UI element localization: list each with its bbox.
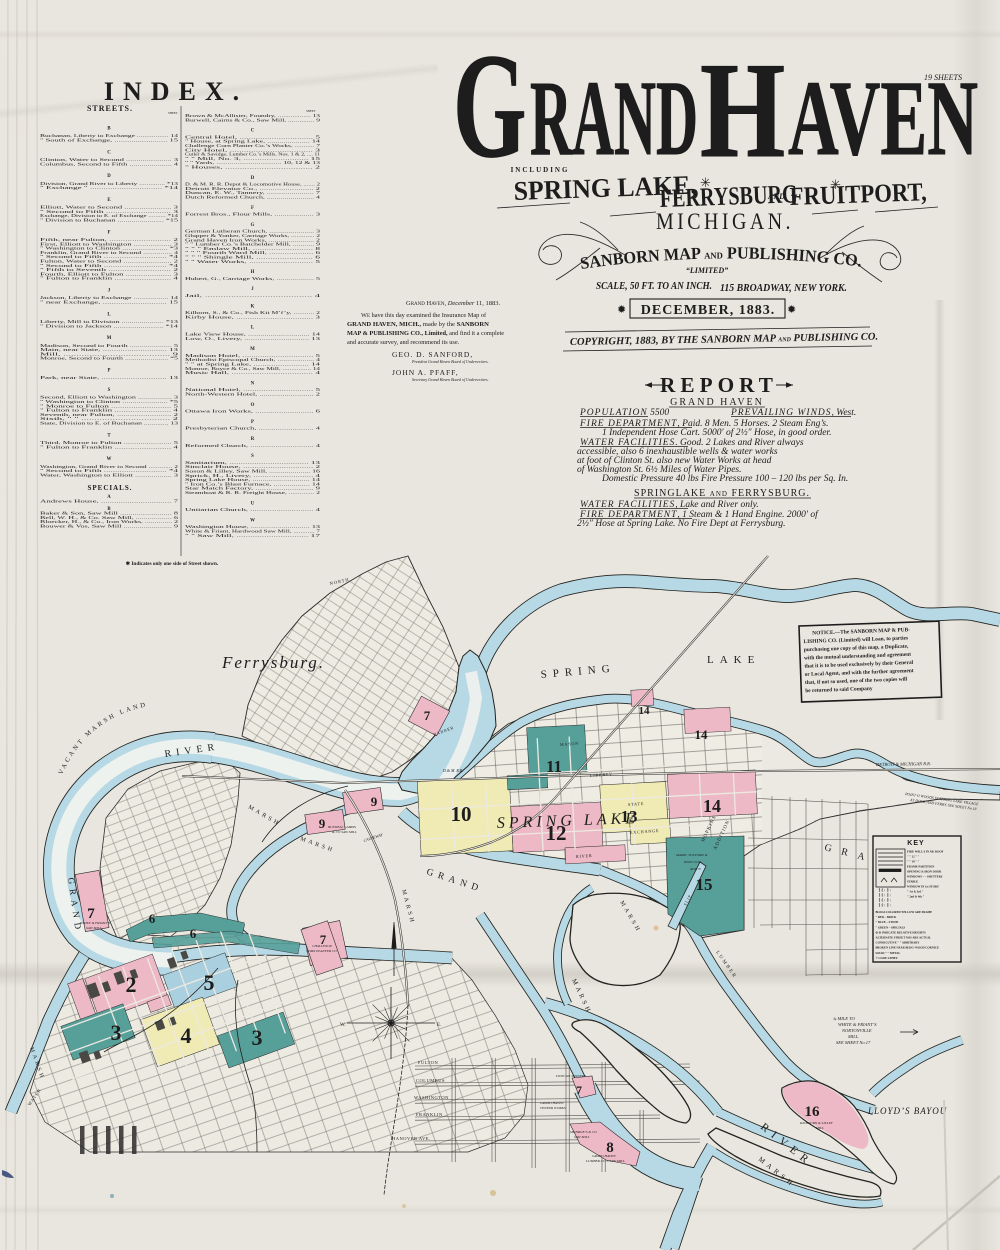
- svg-text:SPRINGLAKE AND FERRYSBURG.: SPRINGLAKE AND FERRYSBURG.: [634, 488, 810, 499]
- svg-text:REPORT: REPORT: [660, 373, 778, 397]
- svg-text:© CLIFF LEHEZ: © CLIFF LEHEZ: [876, 956, 898, 960]
- svg-text:MILL.: MILL.: [847, 1034, 859, 1039]
- svg-text:Ferrysburg.: Ferrysburg.: [221, 653, 325, 672]
- svg-text:" Exchange " ...............: " Exchange " ...........................…: [40, 186, 178, 190]
- svg-text:F: F: [108, 230, 111, 235]
- svg-text:U: U: [251, 501, 255, 506]
- svg-text:19 SHEETS: 19 SHEETS: [924, 73, 962, 82]
- svg-text:M: M: [250, 347, 255, 352]
- svg-text:INDEX.: INDEX.: [104, 77, 248, 106]
- svg-text:BROKEN LINE NEAR BLDG–WOOD COR: BROKEN LINE NEAR BLDG–WOOD CORNICE: [876, 946, 940, 950]
- svg-text:SHEET: SHEET: [168, 111, 178, 115]
- svg-text:VENEER WORKS: VENEER WORKS: [540, 1106, 566, 1110]
- svg-text:D: D: [251, 176, 255, 181]
- svg-text:STREETS.: STREETS.: [87, 104, 133, 113]
- svg-text:Domestic Pressure 40 lbs Fire: Domestic Pressure 40 lbs Fire Pressure 1…: [601, 474, 848, 484]
- svg-text:WASHINGTON: WASHINGTON: [414, 1095, 449, 1100]
- svg-text:D.& M. R.R.: D.& M. R.R.: [442, 768, 463, 773]
- svg-text:WHITE & FRIANT’S: WHITE & FRIANT’S: [80, 921, 110, 925]
- svg-text:G: G: [251, 223, 255, 228]
- svg-text:" Division to Jackson .......: " Division to Jackson ..................…: [40, 324, 178, 328]
- svg-text:SAW MILL: SAW MILL: [574, 1135, 590, 1139]
- svg-text:″ ″ 12 ″ ″: ″ ″ 12 ″ ″: [907, 855, 920, 859]
- svg-text:GRAND HAVEN: GRAND HAVEN: [540, 1101, 564, 1105]
- svg-text:W.: W.: [340, 1023, 346, 1028]
- svg-text:9: 9: [371, 794, 378, 809]
- svg-text:JOHN A. PFAFF,: JOHN A. PFAFF,: [392, 368, 459, 377]
- svg-text:WHITE & FRIANT’S: WHITE & FRIANT’S: [838, 1022, 877, 1027]
- svg-text:WE have this day examined the: WE have this day examined the Insurance …: [361, 312, 487, 319]
- svg-text:2: 2: [126, 972, 137, 997]
- svg-text:CONSECUTIVE ″ ″ ARBITRARY: CONSECUTIVE ″ ″ ARBITRARY: [876, 941, 921, 945]
- svg-text:MILL: MILL: [815, 1126, 824, 1130]
- svg-text:✹: ✹: [787, 304, 796, 316]
- svg-text:R: R: [251, 437, 255, 442]
- svg-text:P: P: [251, 420, 254, 425]
- svg-text:" Division to Buchanan ......: " Division to Buchanan .................…: [40, 219, 178, 223]
- svg-text:M: M: [107, 336, 112, 341]
- svg-text:▕▏|▏| ▕▏|: ▕▏|▏| ▕▏|: [877, 888, 891, 892]
- svg-text:HANOVER AVE.: HANOVER AVE.: [392, 1136, 431, 1141]
- svg-text:AND: AND: [767, 192, 785, 201]
- svg-text:DECEMBER, 1883.: DECEMBER, 1883.: [641, 303, 775, 318]
- svg-text:12: 12: [546, 821, 567, 845]
- svg-text:″ BLUE – STONE: ″ BLUE – STONE: [876, 920, 899, 924]
- svg-text:GRAND HAVEN: GRAND HAVEN: [592, 1154, 616, 1158]
- svg-text:1 Independent Hose Cart. 50: 1 Independent Hose Cart. 5000′ of 2½″ Ho…: [602, 427, 831, 438]
- svg-text:7: 7: [87, 906, 95, 922]
- svg-text:" Fulton to Franklin ........: " Fulton to Franklin ...................…: [40, 445, 178, 449]
- svg-text:FIRE WALL 6 IN AB. ROOF: FIRE WALL 6 IN AB. ROOF: [907, 850, 944, 854]
- svg-text:P: P: [108, 369, 111, 374]
- svg-text:BLDGS COLORED YELLOW ARE FRAME: BLDGS COLORED YELLOW ARE FRAME: [876, 910, 933, 914]
- svg-text:" Fulton to Franklin ........: " Fulton to Franklin ...................…: [40, 277, 178, 281]
- svg-text:LAKE: LAKE: [707, 654, 760, 666]
- svg-text:RAND: RAND: [530, 60, 698, 178]
- svg-text:SAW MILL: SAW MILL: [86, 926, 102, 930]
- svg-text:4: 4: [181, 1023, 192, 1048]
- svg-text:✹: ✹: [617, 304, 626, 316]
- svg-text:SPECIALS.: SPECIALS.: [88, 484, 133, 492]
- svg-text:✱ Indicates only one side of S: ✱ Indicates only one side of Street show…: [126, 561, 219, 567]
- svg-text:″ ″ 18 ″ ″: ″ ″ 18 ″ ″: [907, 860, 920, 864]
- svg-text:FULTON: FULTON: [418, 1060, 439, 1065]
- svg-text:3: 3: [111, 1020, 122, 1045]
- svg-text:ADD’N: ADD’N: [689, 867, 701, 871]
- svg-text:COLUMBUS: COLUMBUS: [416, 1078, 445, 1083]
- svg-text:6: 6: [149, 911, 156, 926]
- svg-text:7: 7: [424, 708, 431, 723]
- svg-text:E.: E.: [437, 1023, 441, 1028]
- svg-text:10: 10: [451, 802, 472, 826]
- svg-text:WINDOWS – – SHUTTERS: WINDOWS – – SHUTTERS: [907, 875, 943, 879]
- svg-text:SHEET: SHEET: [306, 109, 316, 113]
- svg-text:6: 6: [190, 926, 197, 941]
- svg-text:⊘ ⊘ INDICATE RELATIVE HEIGHTS: ⊘ ⊘ INDICATE RELATIVE HEIGHTS: [876, 930, 927, 934]
- svg-text:Secretary Grand Haven Board of: Secretary Grand Haven Board of Underwrit…: [412, 377, 489, 382]
- svg-text:3: 3: [252, 1025, 263, 1050]
- svg-text:″ RED – BRICK: ″ RED – BRICK: [876, 915, 898, 919]
- svg-text:KEY: KEY: [907, 840, 924, 847]
- svg-text:L: L: [107, 312, 110, 317]
- svg-text:L: L: [251, 326, 254, 331]
- svg-text:9: 9: [319, 816, 326, 831]
- svg-text:13: 13: [621, 807, 638, 826]
- svg-text:ALTERNATE STREET NOS ARE ACTUA: ALTERNATE STREET NOS ARE ACTUAL: [876, 936, 932, 940]
- svg-text:SEE SHEET No.17: SEE SHEET No.17: [836, 1040, 871, 1045]
- svg-text:GEO. D. SANFORD,: GEO. D. SANFORD,: [392, 350, 473, 359]
- svg-text:″ 2nd & 4th ″: ″ 2nd & 4th ″: [907, 895, 925, 899]
- svg-text:KILBOURN & LILLEY: KILBOURN & LILLEY: [799, 1121, 834, 1125]
- svg-text:H: H: [251, 270, 255, 275]
- svg-text:HANCOCK: HANCOCK: [683, 860, 701, 864]
- svg-text:14: 14: [695, 727, 709, 742]
- svg-text:W: W: [250, 518, 255, 523]
- svg-text:N: N: [251, 381, 255, 386]
- svg-text:President Grand Haven Board of: President Grand Haven Board of Underwrit…: [411, 359, 489, 364]
- svg-text:▕▏|▏| ▕▏|: ▕▏|▏| ▕▏|: [877, 893, 891, 897]
- svg-text:LLOYD’S BAYOU: LLOYD’S BAYOU: [867, 1106, 947, 1116]
- svg-text:FRANKLIN: FRANKLIN: [416, 1112, 443, 1117]
- svg-text:LUMBER CO’S SAW MILL: LUMBER CO’S SAW MILL: [585, 1159, 625, 1163]
- svg-text:G: G: [453, 23, 526, 189]
- svg-text:OPENING & IRON DOOR: OPENING & IRON DOOR: [907, 870, 942, 874]
- svg-text:✳: ✳: [700, 175, 711, 190]
- svg-text:C: C: [251, 129, 255, 134]
- svg-text:¾ MILE TO: ¾ MILE TO: [833, 1016, 856, 1021]
- svg-text:GRAND HAVEN, December 11, 1883: GRAND HAVEN, December 11, 1883.: [406, 300, 501, 307]
- svg-text:▕▏|▏| ▕▏|: ▕▏|▏| ▕▏|: [877, 903, 891, 907]
- svg-text:S: S: [251, 454, 254, 459]
- svg-text:7: 7: [576, 1083, 582, 1097]
- svg-text:F: F: [251, 206, 254, 211]
- svg-text:STABLE: STABLE: [907, 880, 918, 884]
- svg-text:C: C: [107, 150, 111, 155]
- svg-text:S: S: [108, 388, 111, 393]
- svg-text:MONROE’S & CO: MONROE’S & CO: [569, 1130, 597, 1134]
- svg-text:O: O: [251, 403, 255, 408]
- svg-text:14: 14: [703, 796, 721, 816]
- svg-text:FRUITPORT,: FRUITPORT,: [789, 177, 927, 211]
- svg-text:E: E: [107, 198, 110, 203]
- svg-text:GRAND HAVEN: GRAND HAVEN: [670, 397, 764, 408]
- svg-text:NORTONVILLE: NORTONVILLE: [841, 1028, 872, 1033]
- svg-text:K: K: [251, 304, 255, 309]
- svg-text:H: H: [700, 33, 785, 185]
- svg-text:BUSWELL CAIRNS: BUSWELL CAIRNS: [328, 825, 356, 829]
- svg-text:✳: ✳: [830, 177, 841, 192]
- svg-text:16: 16: [805, 1104, 821, 1120]
- svg-text:MICHIGAN.: MICHIGAN.: [656, 209, 794, 234]
- svg-text:WINDOW IN 1st STORY: WINDOW IN 1st STORY: [907, 885, 940, 889]
- svg-text:W: W: [107, 457, 112, 462]
- svg-text:“LIMITED”: “LIMITED”: [686, 266, 728, 275]
- svg-text:SOLID ″ ″ METAL: SOLID ″ ″ METAL: [876, 951, 901, 955]
- svg-text:and accurate survey, and recom: and accurate survey, and recommend its u…: [347, 339, 460, 346]
- svg-text:″ GREEN – SPECIALS: ″ GREEN – SPECIALS: [876, 925, 906, 929]
- svg-text:D: D: [107, 174, 111, 179]
- svg-text:DETROIT & MICHIGAN R.R.: DETROIT & MICHIGAN R.R.: [875, 761, 931, 767]
- svg-text:▕▏|▏| ▕▏|: ▕▏|▏| ▕▏|: [877, 898, 891, 902]
- svg-text:INCLUDING: INCLUDING: [511, 166, 570, 174]
- svg-text:14: 14: [639, 705, 651, 717]
- svg-text:GRAND HAVEN, MICH., made by th: GRAND HAVEN, MICH., made by the SANBORN: [347, 321, 489, 328]
- svg-text:″ 1st & 3rd ″: ″ 1st & 3rd ″: [907, 890, 924, 894]
- svg-text:115 BROADWAY, NEW YORK.: 115 BROADWAY, NEW YORK.: [720, 282, 847, 294]
- svg-text:SCALE, 50 FT. TO AN INCH.: SCALE, 50 FT. TO AN INCH.: [596, 280, 712, 292]
- svg-text:DUNCAN TANNERY: DUNCAN TANNERY: [555, 1074, 587, 1078]
- svg-text:2½″ Hose at Spring Lake.: 2½″ Hose at Spring Lake. No Fire Dept at…: [577, 518, 786, 529]
- svg-text:CHALLENGE: CHALLENGE: [312, 944, 333, 948]
- svg-text:MAP & PUBLISHING CO., Limited,: MAP & PUBLISHING CO., Limited, and find …: [347, 330, 504, 337]
- svg-text:FRAME PARTITION: FRAME PARTITION: [907, 865, 935, 869]
- svg-text:11: 11: [546, 757, 562, 776]
- svg-text:& CO SAW MILL: & CO SAW MILL: [332, 830, 357, 834]
- svg-text:15: 15: [696, 875, 713, 894]
- svg-text:5: 5: [204, 970, 215, 995]
- svg-text:CORN PLANTER CO: CORN PLANTER CO: [306, 949, 337, 953]
